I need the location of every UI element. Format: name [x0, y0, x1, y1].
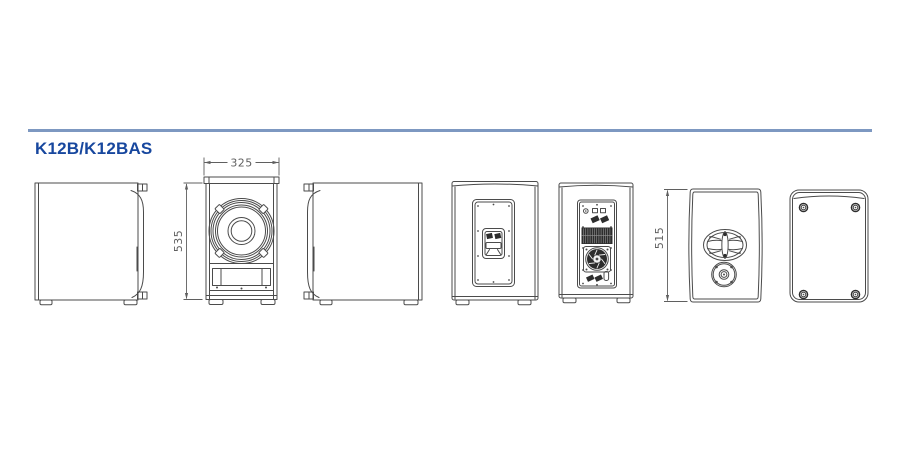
- rigging-tab: [304, 184, 314, 191]
- cabinet-feet: [40, 300, 137, 305]
- heatsink: [582, 228, 613, 245]
- dimension-front-height: 535: [172, 183, 203, 300]
- pole-mount: [712, 262, 737, 287]
- side-height-label: 515: [653, 227, 666, 249]
- cabinet-feet: [320, 300, 418, 305]
- front-width-label: 325: [230, 157, 252, 170]
- xlr-connectors: [591, 215, 610, 223]
- side-handle: [704, 230, 747, 261]
- foot: [851, 290, 861, 300]
- view-bottom: [689, 189, 762, 302]
- foot: [851, 203, 861, 213]
- volume-knob: [584, 209, 589, 214]
- cabinet-feet: [563, 298, 630, 303]
- foot: [799, 290, 809, 300]
- dimension-front-width: 325: [204, 157, 279, 176]
- view-rear-amp: [559, 183, 633, 303]
- view-front: [204, 177, 279, 305]
- cabinet-feet: [456, 300, 531, 305]
- page: K12B/K12BAS: [0, 0, 900, 461]
- speakon-connectors: [586, 275, 603, 282]
- view-handle-side: [452, 182, 538, 305]
- woofer: [209, 199, 274, 264]
- view-side-left: [35, 183, 147, 305]
- rigging-tab: [138, 292, 148, 299]
- front-height-label: 535: [172, 230, 185, 252]
- view-side-right: [304, 183, 422, 305]
- foot: [799, 203, 809, 213]
- power-inlet: [604, 272, 609, 281]
- bass-port: [210, 264, 274, 291]
- technical-drawing: 535 325: [0, 0, 900, 461]
- cooling-fan: [584, 247, 611, 273]
- cabinet-feet: [209, 300, 275, 305]
- dimension-side-height: 515: [653, 190, 688, 302]
- switches: [593, 209, 606, 213]
- recessed-handle: [483, 229, 505, 259]
- view-top: [790, 190, 868, 302]
- rigging-tab: [138, 184, 148, 191]
